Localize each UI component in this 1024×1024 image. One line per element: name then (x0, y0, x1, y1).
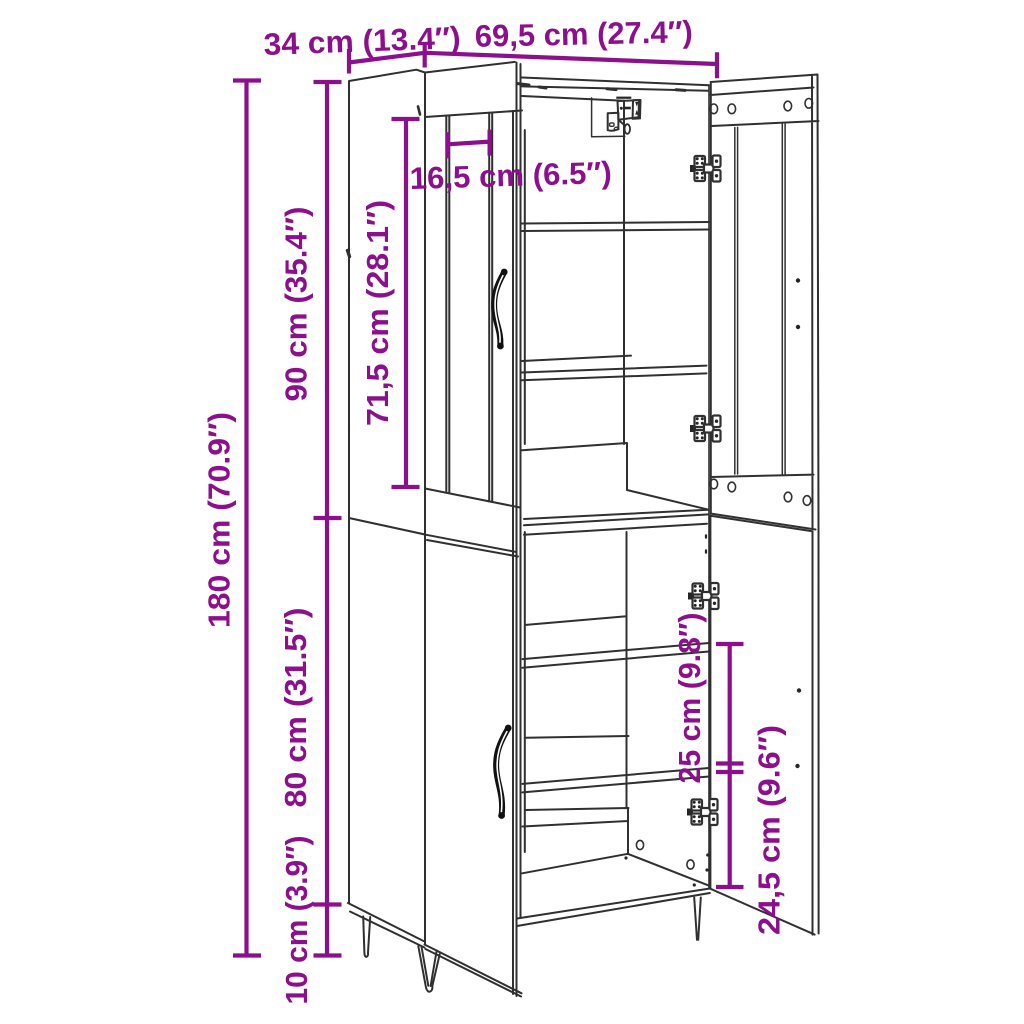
svg-text:80 cm (31.5″): 80 cm (31.5″) (278, 608, 313, 808)
svg-text:24,5 cm (9.6″): 24,5 cm (9.6″) (752, 725, 787, 935)
svg-text:16,5 cm (6.5″): 16,5 cm (6.5″) (409, 155, 612, 196)
svg-text:25 cm (9.8″): 25 cm (9.8″) (672, 613, 707, 784)
svg-text:71,5 cm (28.1″): 71,5 cm (28.1″) (360, 200, 395, 426)
svg-text:180 cm (70.9″): 180 cm (70.9″) (202, 412, 237, 628)
svg-text:90 cm (35.4″): 90 cm (35.4″) (279, 207, 314, 402)
svg-text:69,5 cm (27.4″): 69,5 cm (27.4″) (474, 14, 693, 54)
svg-text:10 cm (3.9″): 10 cm (3.9″) (279, 836, 314, 1005)
svg-text:34 cm (13.4″): 34 cm (13.4″) (263, 20, 461, 62)
